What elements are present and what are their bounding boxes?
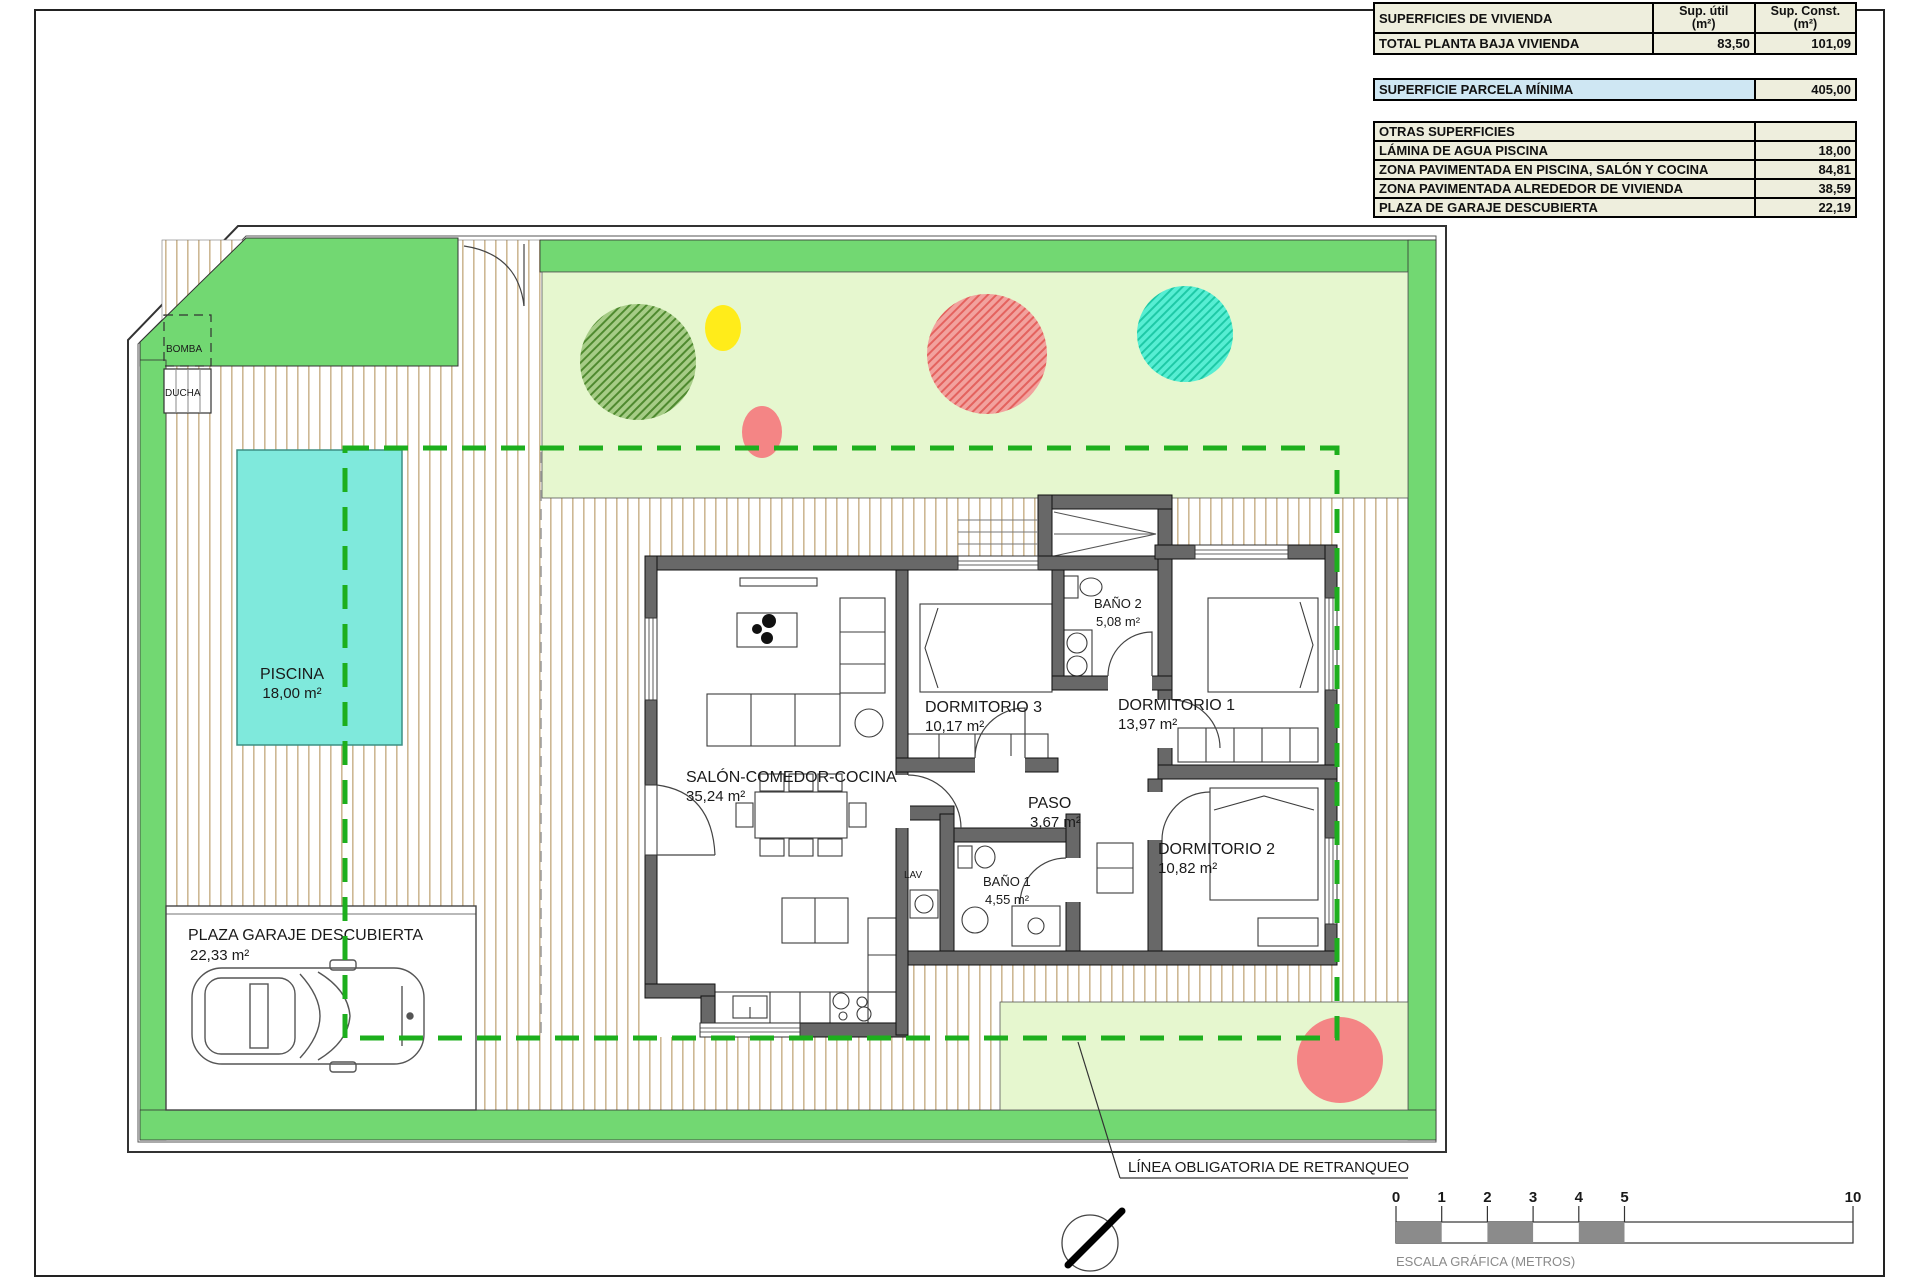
salon-label: SALÓN-COMEDOR-COCINA xyxy=(686,767,897,786)
otras-header-row: OTRAS SUPERFICIES xyxy=(1373,121,1857,142)
window-icon xyxy=(645,618,657,700)
tree-green-icon xyxy=(580,304,696,420)
scale-tick-5: 5 xyxy=(1620,1189,1628,1206)
total-util-value: 83,50 xyxy=(1652,34,1754,53)
table-parcela-minima: SUPERFICIE PARCELA MÍNIMA 405,00 xyxy=(1373,78,1857,101)
floorplan-sheet: BOMBA DUCHA PISCINA 18,00 m² PLAZA GARAJ… xyxy=(0,0,1920,1280)
dorm3-area: 10,17 m² xyxy=(925,718,984,735)
bush-coral-bottom-icon xyxy=(1297,1017,1383,1103)
table-row: TOTAL PLANTA BAJA VIVIENDA 83,50 101,09 xyxy=(1373,32,1857,55)
garage: PLAZA GARAJE DESCUBIERTA 22,33 m² xyxy=(166,906,476,1110)
table-row: ZONA PAVIMENTADA EN PISCINA, SALÓN Y COC… xyxy=(1373,159,1857,180)
scale-tick-2: 2 xyxy=(1483,1189,1491,1206)
otras-row-label: ZONA PAVIMENTADA EN PISCINA, SALÓN Y COC… xyxy=(1375,161,1754,178)
scale-tick-1: 1 xyxy=(1438,1189,1446,1206)
scale-tick-10: 10 xyxy=(1845,1189,1862,1206)
parcela-label: SUPERFICIE PARCELA MÍNIMA xyxy=(1375,80,1754,99)
paso-area: 3,67 m² xyxy=(1030,814,1081,831)
col-sup-const: Sup. Const. (m²) xyxy=(1754,4,1855,32)
pool-area-label: 18,00 m² xyxy=(262,685,321,702)
table-row: PLAZA DE GARAJE DESCUBIERTA 22,19 xyxy=(1373,197,1857,218)
ducha-box: DUCHA xyxy=(164,369,211,413)
bano2-area: 5,08 m² xyxy=(1096,614,1141,629)
window-kitchen xyxy=(700,1023,800,1037)
bomba-box: BOMBA xyxy=(164,315,211,366)
bano2-label: BAÑO 2 xyxy=(1094,596,1142,611)
col-sup-util-line2: (m²) xyxy=(1692,18,1716,31)
table-row: LÁMINA DE AGUA PISCINA 18,00 xyxy=(1373,140,1857,161)
col-sup-const-line2: (m²) xyxy=(1794,18,1818,31)
dorm2-label: DORMITORIO 2 xyxy=(1158,841,1275,858)
entry-door-glass xyxy=(958,556,1038,570)
otras-row-value: 84,81 xyxy=(1754,161,1855,178)
scale-tick-4: 4 xyxy=(1575,1189,1584,1206)
bano1-label: BAÑO 1 xyxy=(983,874,1031,889)
garage-area-label: 22,33 m² xyxy=(190,947,249,964)
bomba-label: BOMBA xyxy=(166,344,202,355)
dorm3-label: DORMITORIO 3 xyxy=(925,699,1042,716)
otras-row-label: LÁMINA DE AGUA PISCINA xyxy=(1375,142,1754,159)
dorm1-label: DORMITORIO 1 xyxy=(1118,697,1235,714)
bush-yellow-icon xyxy=(705,305,741,351)
parcela-value: 405,00 xyxy=(1754,80,1855,99)
otras-empty-cell xyxy=(1754,123,1855,140)
lav-label: LAV xyxy=(904,870,922,881)
otras-row-label: PLAZA DE GARAJE DESCUBIERTA xyxy=(1375,199,1754,216)
total-label: TOTAL PLANTA BAJA VIVIENDA xyxy=(1375,34,1652,53)
ducha-label: DUCHA xyxy=(165,388,201,399)
scale-caption: ESCALA GRÁFICA (METROS) xyxy=(1396,1254,1575,1269)
dorm2-area: 10,82 m² xyxy=(1158,860,1217,877)
table-row: SUPERFICIE PARCELA MÍNIMA 405,00 xyxy=(1373,78,1857,101)
scale-bar: 0 1 2 3 4 5 10 ESCALA GRÁFICA (METROS) xyxy=(1392,1189,1862,1269)
window-dorm1-top xyxy=(1195,545,1288,559)
total-const-value: 101,09 xyxy=(1754,34,1855,53)
scale-tick-3: 3 xyxy=(1529,1189,1537,1206)
pool: PISCINA 18,00 m² xyxy=(237,450,402,745)
salon-area: 35,24 m² xyxy=(686,788,745,805)
north-arrow-icon xyxy=(1062,1211,1122,1271)
otras-title: OTRAS SUPERFICIES xyxy=(1375,123,1754,140)
table-title: SUPERFICIES DE VIVIENDA xyxy=(1375,4,1652,32)
setback-label: LÍNEA OBLIGATORIA DE RETRANQUEO xyxy=(1128,1159,1409,1176)
table-header-row: SUPERFICIES DE VIVIENDA Sup. útil (m²) S… xyxy=(1373,2,1857,34)
paso-label: PASO xyxy=(1028,795,1071,812)
otras-row-value: 38,59 xyxy=(1754,180,1855,197)
tree-teal-icon xyxy=(1137,286,1233,382)
table-row: ZONA PAVIMENTADA ALREDEDOR DE VIVIENDA 3… xyxy=(1373,178,1857,199)
otras-row-value: 22,19 xyxy=(1754,199,1855,216)
garage-label: PLAZA GARAJE DESCUBIERTA xyxy=(188,927,423,944)
otras-row-value: 18,00 xyxy=(1754,142,1855,159)
house: SALÓN-COMEDOR-COCINA 35,24 m² DORMITORIO… xyxy=(645,495,1337,1037)
col-sup-util: Sup. útil (m²) xyxy=(1652,4,1754,32)
bano1-area: 4,55 m² xyxy=(985,892,1030,907)
scale-tick-0: 0 xyxy=(1392,1189,1400,1206)
dorm1-area: 13,97 m² xyxy=(1118,716,1177,733)
table-otras-superficies: OTRAS SUPERFICIES LÁMINA DE AGUA PISCINA… xyxy=(1373,121,1857,218)
tree-red-icon xyxy=(927,294,1047,414)
pool-label: PISCINA xyxy=(260,666,324,683)
table-superficies-vivienda: SUPERFICIES DE VIVIENDA Sup. útil (m²) S… xyxy=(1373,2,1857,55)
otras-row-label: ZONA PAVIMENTADA ALREDEDOR DE VIVIENDA xyxy=(1375,180,1754,197)
